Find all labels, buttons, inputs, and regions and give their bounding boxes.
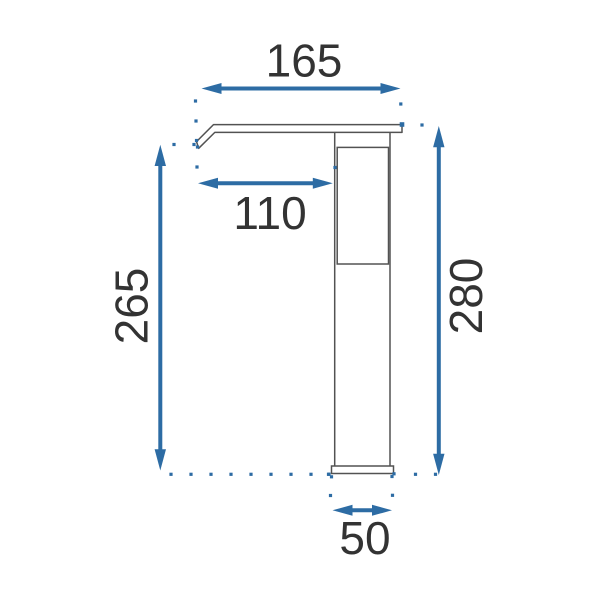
svg-text:280: 280 — [440, 258, 492, 335]
svg-text:50: 50 — [339, 512, 390, 564]
svg-text:110: 110 — [233, 187, 306, 239]
svg-text:165: 165 — [266, 35, 343, 87]
svg-text:265: 265 — [106, 268, 158, 345]
